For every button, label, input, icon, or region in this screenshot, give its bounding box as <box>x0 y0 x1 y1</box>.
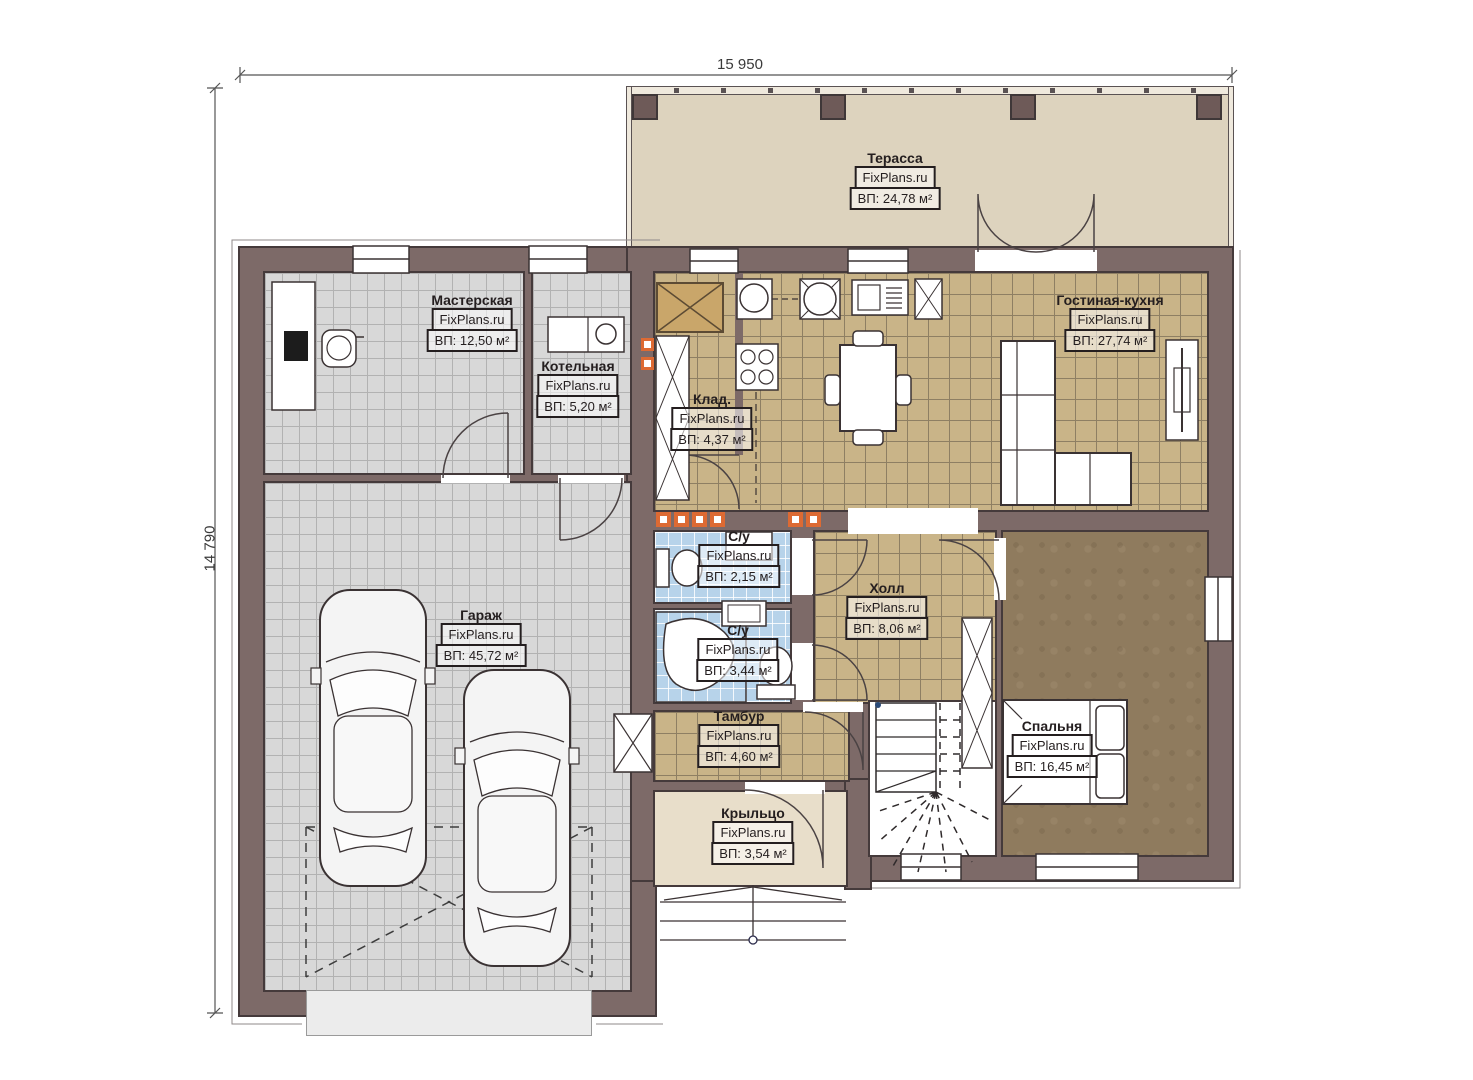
door-boiler <box>560 478 622 540</box>
room-area: ВП: 5,20 м² <box>536 395 619 418</box>
room-area: ВП: 8,06 м² <box>845 617 928 640</box>
room-label-vestibule: Тамбур FixPlans.ru ВП: 4,60 м² <box>697 708 780 768</box>
dimension-left-label: 14 790 <box>202 499 219 599</box>
room-label-hall: Холл FixPlans.ru ВП: 8,06 м² <box>845 580 928 640</box>
kitchen-fridge <box>852 280 908 315</box>
car <box>311 590 435 886</box>
room-area: ВП: 3,44 м² <box>696 659 779 682</box>
wardrobe <box>962 618 992 768</box>
room-area: ВП: 3,54 м² <box>711 842 794 865</box>
watermark-badge: FixPlans.ru <box>854 166 935 189</box>
dining-table <box>825 331 911 445</box>
watermark-badge: FixPlans.ru <box>537 374 618 397</box>
watermark-badge: FixPlans.ru <box>846 596 927 619</box>
room-area: ВП: 16,45 м² <box>1007 755 1098 778</box>
watermark-badge: FixPlans.ru <box>1069 308 1150 331</box>
door-storage <box>685 455 739 509</box>
door-garage-vestibule <box>614 714 652 772</box>
room-area: ВП: 2,15 м² <box>697 565 780 588</box>
watermark-badge: FixPlans.ru <box>712 821 793 844</box>
door-wc2 <box>812 645 867 700</box>
porch-steps <box>660 885 846 944</box>
room-label-terrace: Терасса FixPlans.ru ВП: 24,78 м² <box>850 150 941 210</box>
toilet-wc1 <box>656 549 702 587</box>
room-label-boiler: Котельная FixPlans.ru ВП: 5,20 м² <box>536 358 619 418</box>
watermark-badge: FixPlans.ru <box>697 638 778 661</box>
kitchen-end-cabinet <box>915 279 942 319</box>
sofa <box>1001 341 1131 505</box>
room-label-garage: Гараж FixPlans.ru ВП: 45,72 м² <box>436 607 527 667</box>
tv-unit <box>1166 340 1198 440</box>
room-label-living-kitchen: Гостиная-кухня FixPlans.ru ВП: 27,74 м² <box>1056 292 1163 352</box>
kitchen-sink <box>737 279 800 319</box>
boiler-unit <box>548 317 624 352</box>
watermark-badge: FixPlans.ru <box>431 308 512 331</box>
dimension-top-label: 15 950 <box>690 56 790 73</box>
room-area: ВП: 4,60 м² <box>697 745 780 768</box>
room-area: ВП: 12,50 м² <box>427 329 518 352</box>
door-terrace-left <box>978 194 1036 252</box>
room-label-wc2: С/у FixPlans.ru ВП: 3,44 м² <box>696 622 779 682</box>
room-label-wc1: С/у FixPlans.ru ВП: 2,15 м² <box>697 528 780 588</box>
watermark-badge: FixPlans.ru <box>698 724 779 747</box>
door-workshop <box>443 413 508 478</box>
watermark-badge: FixPlans.ru <box>1011 734 1092 757</box>
door-bedroom <box>939 540 999 600</box>
floor-plan-canvas: 15 950 14 790 <box>0 0 1473 1080</box>
watermark-badge: FixPlans.ru <box>698 544 779 567</box>
kitchen-hob-unit <box>800 279 840 319</box>
workshop-desk <box>272 282 315 410</box>
watermark-badge: FixPlans.ru <box>671 407 752 430</box>
room-area: ВП: 27,74 м² <box>1065 329 1156 352</box>
office-chair <box>322 330 364 367</box>
watermark-badge: FixPlans.ru <box>440 623 521 646</box>
door-terrace-right <box>1036 194 1094 252</box>
car <box>455 670 579 966</box>
room-label-porch: Крыльцо FixPlans.ru ВП: 3,54 м² <box>711 805 794 865</box>
room-label-bedroom: Спальня FixPlans.ru ВП: 16,45 м² <box>1007 718 1098 778</box>
room-area: ВП: 24,78 м² <box>850 187 941 210</box>
door-vestibule <box>805 712 863 770</box>
room-label-storage: Клад. FixPlans.ru ВП: 4,37 м² <box>670 391 753 451</box>
room-label-workshop: Мастерская FixPlans.ru ВП: 12,50 м² <box>427 292 518 352</box>
kitchen-cabinet-corner <box>657 283 723 332</box>
room-area: ВП: 45,72 м² <box>436 644 527 667</box>
room-area: ВП: 4,37 м² <box>670 428 753 451</box>
